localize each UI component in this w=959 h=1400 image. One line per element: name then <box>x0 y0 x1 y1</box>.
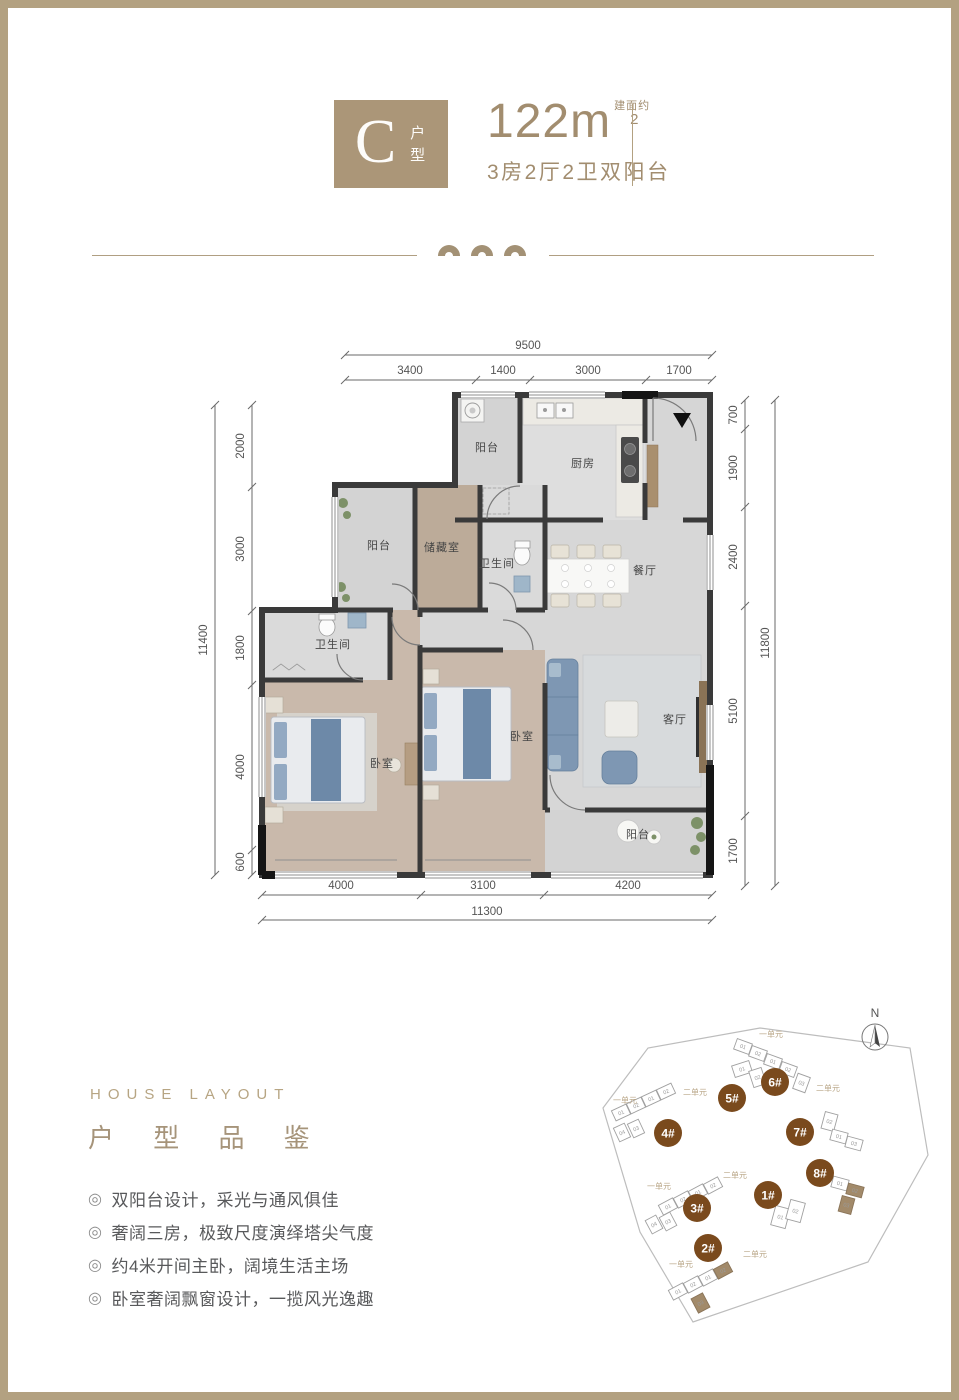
dim-left-seg-2: 1800 <box>235 635 247 661</box>
room-bedroom-master: 卧室 <box>370 756 394 770</box>
dim-left-seg-1: 3000 <box>235 536 247 562</box>
dim-left-seg-0: 2000 <box>235 433 247 459</box>
feature-text: 双阳台设计，采光与通风俱佳 <box>111 1186 339 1211</box>
type-badge: C 户型 <box>334 100 448 188</box>
building-5: 01025# <box>718 1061 766 1112</box>
dim-bottom-seg-1: 3100 <box>470 880 496 892</box>
building-3: 010201020403一单元二单元3# <box>645 1170 747 1234</box>
divider-line-right <box>549 255 874 256</box>
room-storage: 储藏室 <box>424 540 460 554</box>
building-number: 4# <box>661 1127 675 1141</box>
feature-item: ◎约4米开间主卧，阔境生活主场 <box>88 1248 374 1281</box>
building-number: 5# <box>725 1092 739 1106</box>
dim-bottom-seg-0: 4000 <box>328 880 354 892</box>
room-bedroom-second: 卧室 <box>510 729 534 743</box>
feature-item: ◎奢阔三房，极致尺度演绎塔尖气度 <box>88 1215 374 1248</box>
site-map: 01021#0102010203一单元二单元2#010201020403一单元二… <box>585 995 945 1345</box>
unit-entrance-label: 一单元 <box>647 1181 671 1191</box>
dim-top-seg-2: 3000 <box>575 365 601 377</box>
bullet-icon: ◎ <box>88 1288 102 1308</box>
compass-label: N <box>871 1006 880 1020</box>
bullet-icon: ◎ <box>88 1255 102 1275</box>
building-7: 0201037# <box>786 1112 863 1151</box>
unit-entrance-label: 二单元 <box>816 1083 840 1093</box>
building-1: 01021# <box>754 1181 805 1229</box>
dim-left-total: 11400 <box>198 624 210 655</box>
feature-item: ◎卧室奢阔飘窗设计，一揽风光逸趣 <box>88 1281 374 1314</box>
dim-left-seg-3: 4000 <box>235 754 247 780</box>
building-number: 3# <box>690 1202 704 1216</box>
dim-top-seg-3: 1700 <box>666 365 692 377</box>
bullet-icon: ◎ <box>88 1189 102 1209</box>
dim-right-seg-3: 5100 <box>728 698 740 724</box>
unit-entrance-label: 一单元 <box>669 1259 693 1269</box>
unit-entrance-label: 一单元 <box>759 1029 783 1039</box>
dim-right-seg-1: 1900 <box>728 455 740 481</box>
unit-entrance-label: 二单元 <box>683 1087 707 1097</box>
section-heading-zh: 户 型 品 鉴 <box>88 1118 326 1155</box>
unit-entrance-label: 一单元 <box>613 1095 637 1105</box>
dim-right-seg-2: 2400 <box>728 544 740 570</box>
floorplan-drawing: 阳台 厨房 阳台 储藏室 卫生间 餐厅 卫生间 卧室 卧室 客厅 阳台 9500… <box>185 325 785 935</box>
room-balcony-bottom: 阳台 <box>626 827 650 841</box>
building-number: 2# <box>701 1242 715 1256</box>
room-kitchen: 厨房 <box>571 457 595 470</box>
building-4: 010201020403一单元二单元4# <box>611 1083 707 1147</box>
layout-description: 3房2厅2卫双阳台 <box>487 156 671 186</box>
type-label: 户型 <box>406 125 427 169</box>
building-number: 8# <box>813 1167 827 1181</box>
feature-text: 奢阔三房，极致尺度演绎塔尖气度 <box>111 1219 374 1244</box>
dim-right-seg-0: 700 <box>728 405 740 424</box>
feature-text: 卧室奢阔飘窗设计，一揽风光逸趣 <box>111 1285 374 1310</box>
room-balcony-top: 阳台 <box>475 440 499 454</box>
dim-bottom-seg-2: 4200 <box>615 880 641 892</box>
area-value: 122 <box>487 98 570 146</box>
area-unit: m <box>570 98 611 146</box>
dim-top-seg-1: 1400 <box>490 365 516 377</box>
dim-bottom-total: 11300 <box>471 906 502 918</box>
building-number: 1# <box>761 1189 775 1203</box>
dim-top-total: 9500 <box>515 340 541 352</box>
building-8: 0102038# <box>806 1159 864 1214</box>
fan-ornaments-icon <box>437 240 533 262</box>
room-bath-upper: 卫生间 <box>479 556 515 570</box>
area-superscript: 2 <box>630 112 650 129</box>
dim-right-total: 11800 <box>760 627 772 658</box>
dim-left-seg-4: 600 <box>235 852 247 871</box>
dim-right-seg-4: 1700 <box>728 838 740 864</box>
room-bath-lower: 卫生间 <box>315 637 351 651</box>
feature-list: ◎双阳台设计，采光与通风俱佳 ◎奢阔三房，极致尺度演绎塔尖气度 ◎约4米开间主卧… <box>88 1182 374 1314</box>
type-letter: C <box>355 111 396 173</box>
feature-text: 约4米开间主卧，阔境生活主场 <box>111 1252 348 1277</box>
feature-item: ◎双阳台设计，采光与通风俱佳 <box>88 1182 374 1215</box>
unit-entrance-label: 二单元 <box>723 1170 747 1180</box>
room-dining: 餐厅 <box>633 563 657 577</box>
header-divider-rule <box>632 104 633 186</box>
room-balcony-mid: 阳台 <box>367 538 391 552</box>
section-heading-en: HOUSE LAYOUT <box>90 1086 290 1103</box>
building-number: 6# <box>768 1076 782 1090</box>
area-block: 122m 建面约 2 3房2厅2卫双阳台 <box>487 98 671 186</box>
room-living: 客厅 <box>663 712 687 726</box>
site-buildings: 01021#0102010203一单元二单元2#010201020403一单元二… <box>611 1029 864 1313</box>
dim-top-seg-0: 3400 <box>397 365 423 377</box>
unit-entrance-label: 二单元 <box>743 1249 767 1259</box>
bullet-icon: ◎ <box>88 1222 102 1242</box>
building-number: 7# <box>793 1126 807 1140</box>
divider-line-left <box>92 255 417 256</box>
floorplan-poster: C 户型 122m 建面约 2 3房2厅2卫双阳台 <box>0 0 959 1400</box>
